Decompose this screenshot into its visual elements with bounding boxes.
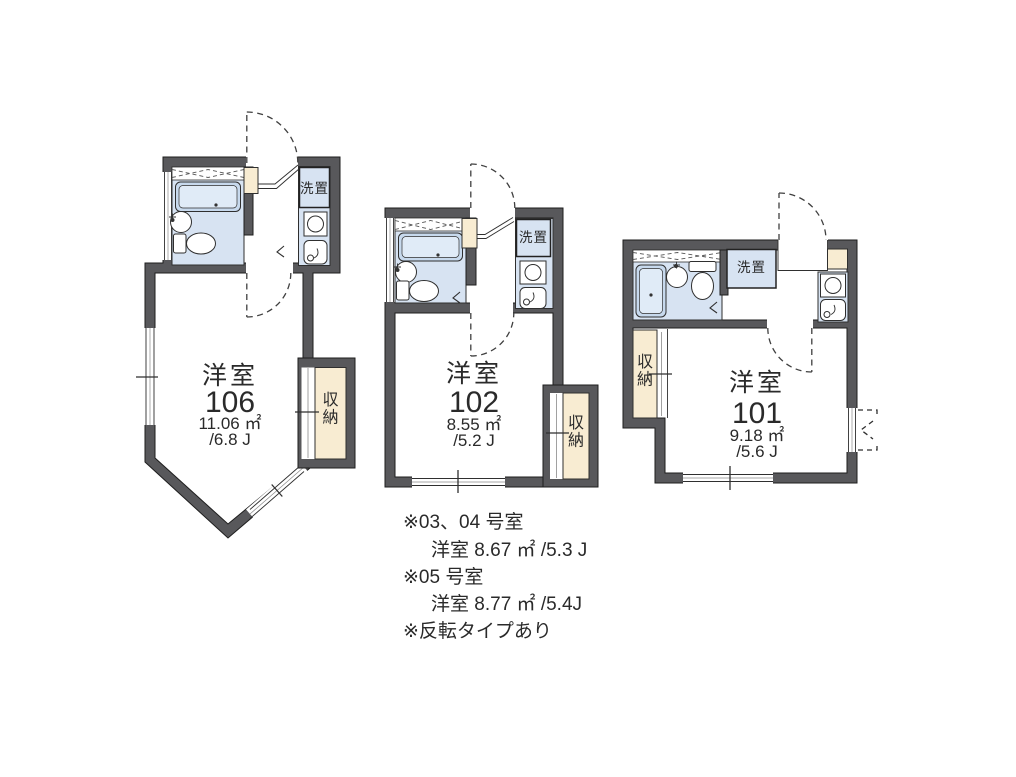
unit-102-roomdoor-opening [470, 302, 513, 315]
tub-drain [436, 253, 439, 256]
room-area-tatami: /5.2 J [453, 431, 495, 450]
bathroom-shelf [633, 250, 722, 262]
unit-106: 洋室 106 11.06 ㎡ /6.8 J 収納 洗置 [136, 112, 355, 538]
closet-label: 収納 [568, 414, 584, 449]
toilet-bowl [692, 273, 714, 300]
unit-102-entrance-opening [470, 207, 515, 220]
unit-101-roomdoor-opening [767, 319, 813, 330]
tub-drain [214, 203, 217, 206]
toilet-tank [174, 234, 187, 253]
unit-106-room-window [136, 328, 158, 425]
room-type-label: 洋室 [729, 369, 785, 397]
wash-basin [171, 212, 192, 233]
unit-106-entrance-opening [246, 156, 298, 169]
toilet-bowl [410, 281, 439, 302]
unit-101: 洋室 101 9.18 ㎡ /5.6 J 収納 洗置 [623, 193, 877, 490]
unit-106-entrance-door [247, 112, 298, 163]
closet-label: 収納 [637, 353, 653, 388]
room-area-tatami: /6.8 J [209, 430, 251, 449]
toilet-bowl [187, 233, 216, 254]
unit-101-kitchen [818, 272, 848, 322]
shutter-symbol [858, 410, 877, 450]
bathroom-shelf [172, 167, 244, 180]
tub-drain [649, 293, 652, 296]
unit-101-entrance-door [779, 193, 826, 240]
note-line-5: ※反転タイプあり [403, 620, 552, 642]
notes-block: ※03、04 号室 洋室 8.67 ㎡ /5.3 J ※05 号室 洋室 8.7… [403, 511, 587, 642]
note-line-2: 洋室 8.67 ㎡ /5.3 J [431, 538, 587, 561]
floorplan-page: 洋室 106 11.06 ㎡ /6.8 J 収納 洗置 [0, 0, 1016, 772]
unit-102: 洋室 102 8.55 ㎡ /5.2 J 収納 洗置 [384, 164, 599, 493]
room-type-label: 洋室 [446, 360, 502, 388]
unit-106-roomdoor-opening [246, 262, 293, 275]
unit-102-entrance-door [471, 164, 515, 208]
kitchen-sink [304, 241, 327, 265]
note-line-3: ※05 号室 [403, 566, 483, 588]
washer-label: 洗置 [519, 230, 548, 245]
unit-101-side-window [846, 408, 878, 452]
toilet-tank [397, 281, 410, 300]
note-line-1: ※03、04 号室 [403, 511, 523, 533]
shoe-cabinet [462, 219, 477, 249]
washer-label: 洗置 [737, 260, 766, 275]
unit-101-entrance-opening [778, 239, 828, 252]
kitchen-sink [821, 300, 846, 321]
washer-label: 洗置 [300, 181, 329, 196]
toilet-tank [689, 262, 716, 272]
floorplan-drawing: 洋室 106 11.06 ㎡ /6.8 J 収納 洗置 [0, 0, 1016, 772]
shoe-cabinet [244, 168, 258, 194]
room-area-tatami: /5.6 J [736, 442, 778, 461]
note-line-4: 洋室 8.77 ㎡ /5.4J [431, 592, 582, 615]
wash-basin [667, 267, 688, 288]
closet-label: 収納 [322, 391, 338, 426]
wash-basin [396, 262, 417, 283]
kitchen-sink [520, 288, 546, 309]
unit-101-bathroom [633, 250, 728, 320]
shoe-cabinet [828, 249, 848, 269]
